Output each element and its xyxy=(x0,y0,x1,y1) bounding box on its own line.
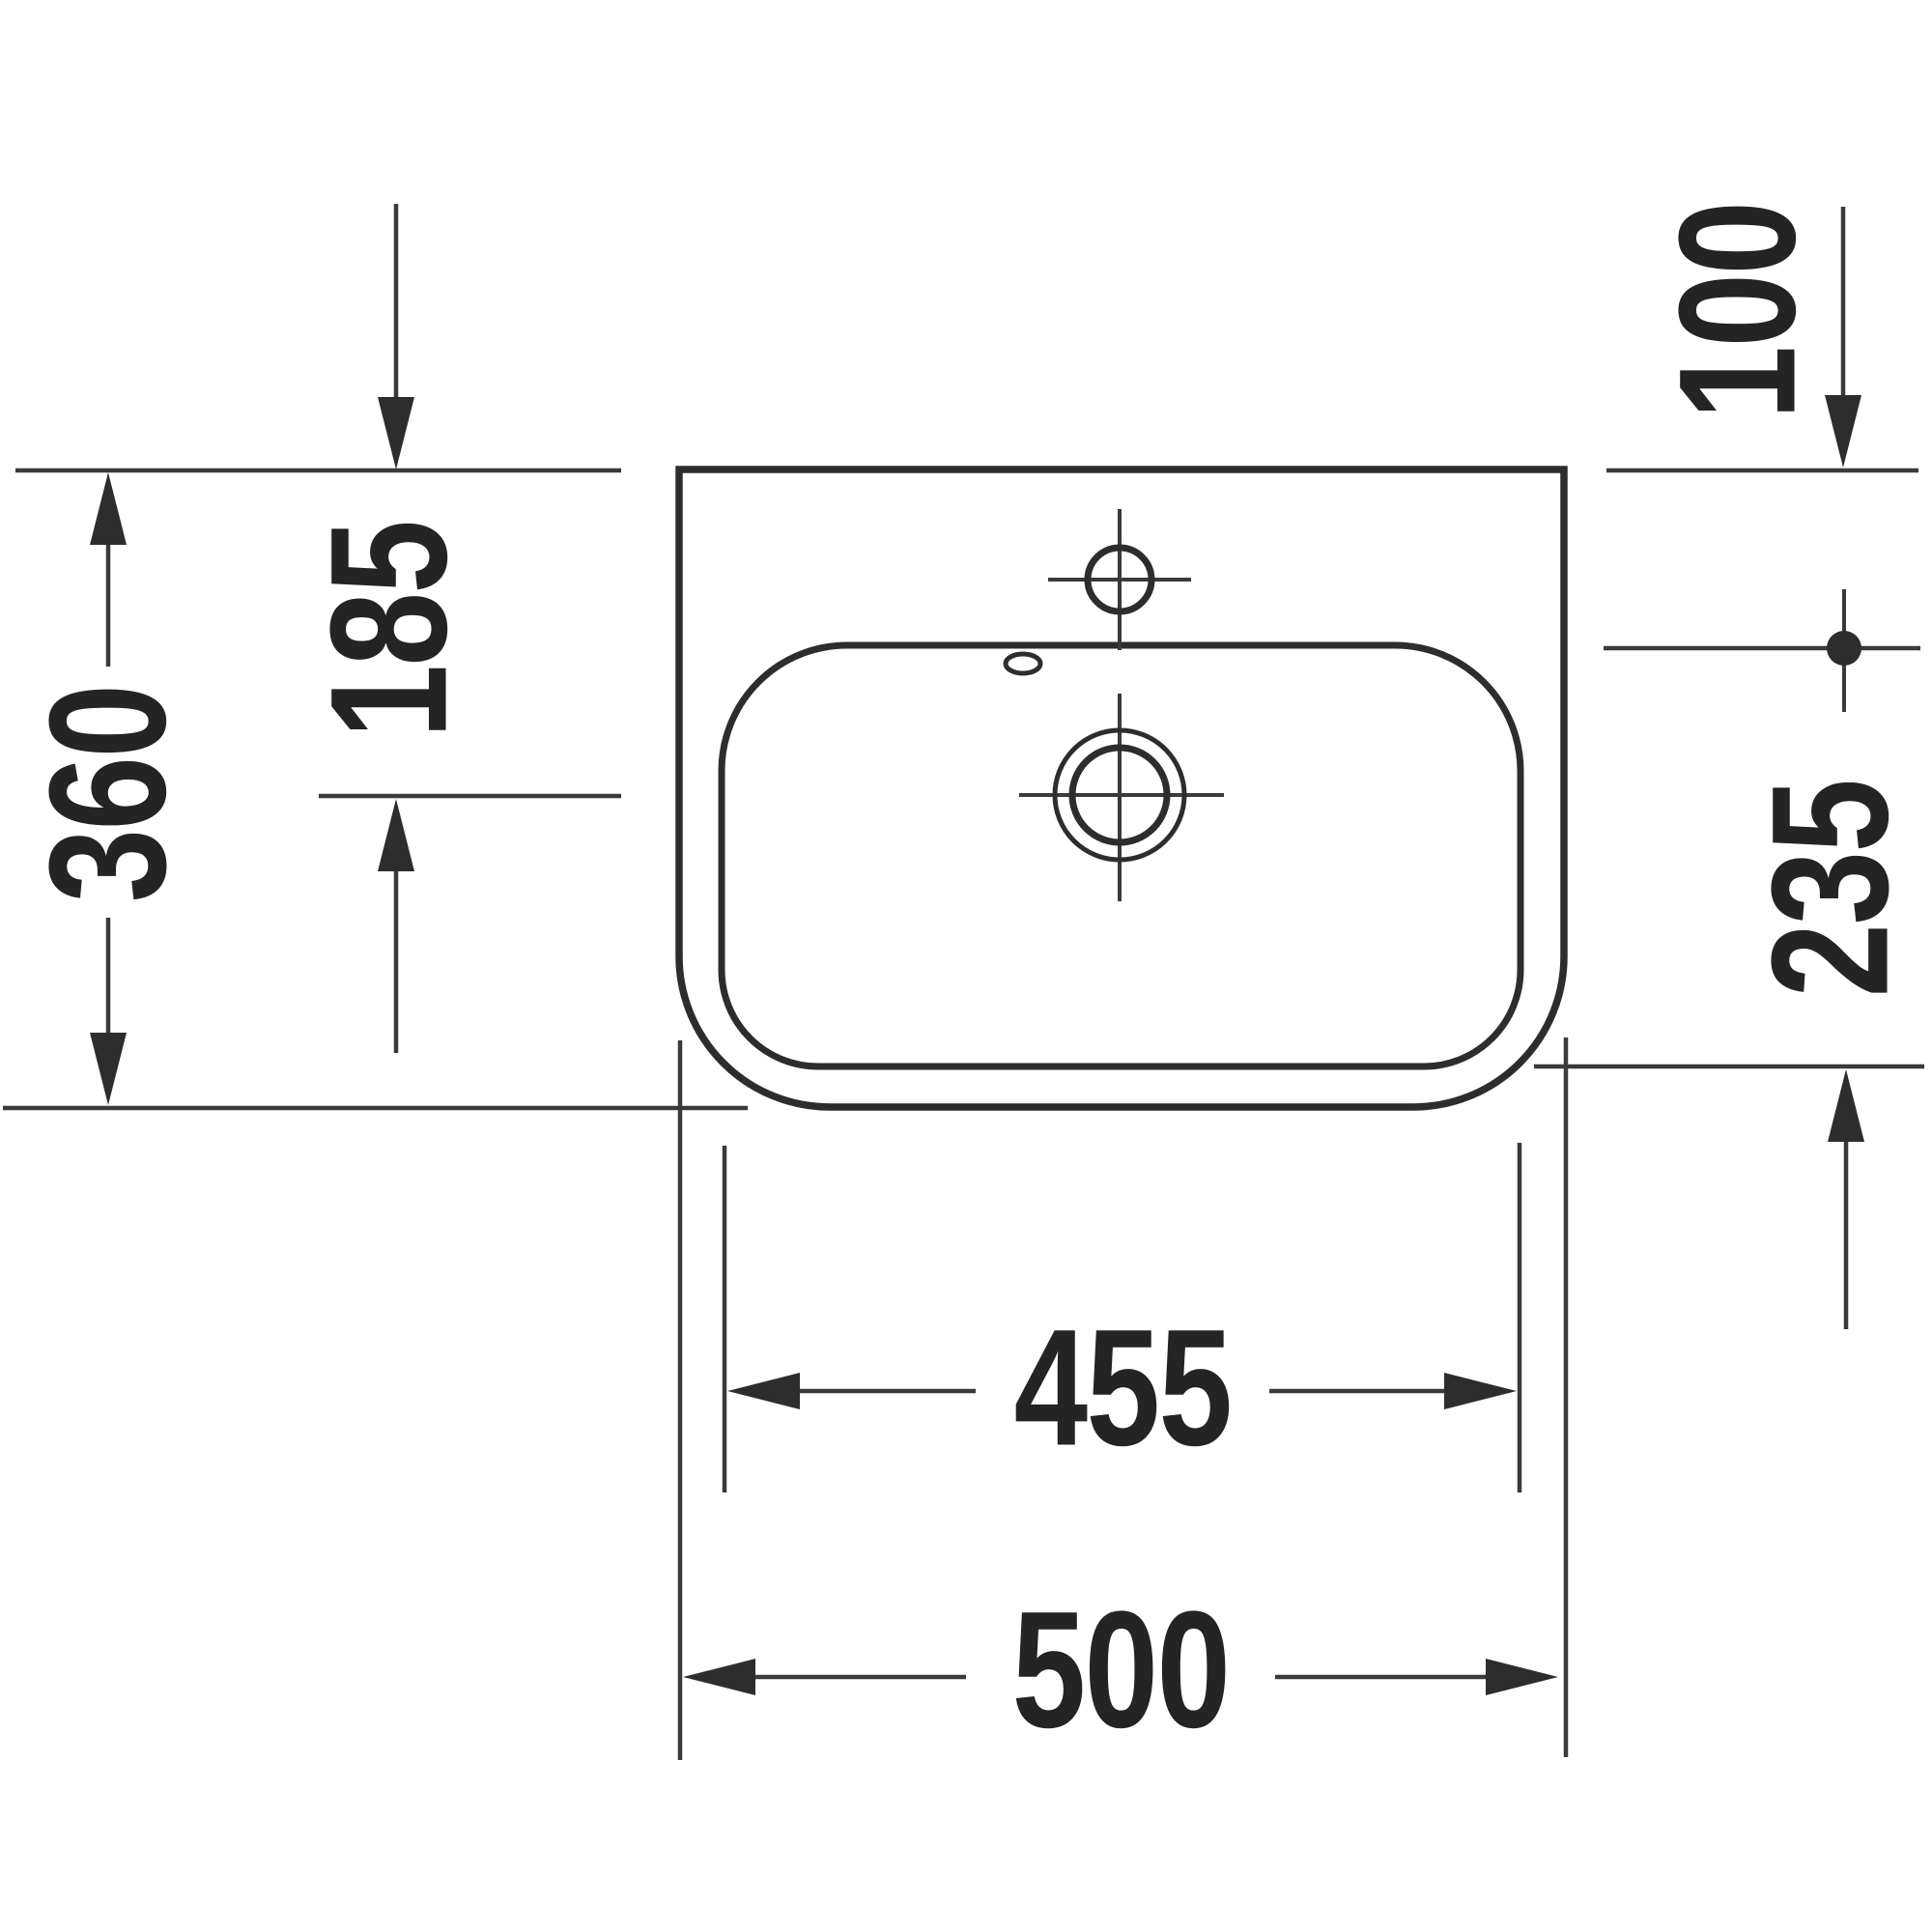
dim-360-arrow-down xyxy=(90,1033,127,1105)
dim-455-arrow-right xyxy=(1444,1373,1517,1409)
dim-455-label: 455 xyxy=(1014,1295,1232,1481)
basin xyxy=(679,469,1861,1107)
fixing-point xyxy=(1827,589,1861,712)
dimension-455: 455 xyxy=(727,1295,1517,1481)
faucet-hole xyxy=(1048,509,1191,650)
washbasin-dimension-drawing: 360 185 100 235 455 xyxy=(0,0,1932,1932)
drain xyxy=(1019,694,1224,901)
overflow-hole xyxy=(1006,654,1040,673)
dim-500-label: 500 xyxy=(1012,1577,1230,1763)
drawing-canvas: 360 185 100 235 455 xyxy=(0,0,1932,1932)
dim-500-arrow-left xyxy=(683,1659,755,1695)
dimension-185: 185 xyxy=(297,204,482,1053)
dim-235-label: 235 xyxy=(1738,781,1923,998)
dim-360-arrow-up xyxy=(90,472,127,545)
dim-100-label: 100 xyxy=(1645,203,1831,420)
dim-235-arrow-up xyxy=(1828,1069,1864,1142)
dimension-360: 360 xyxy=(15,472,201,1105)
dimension-235: 235 xyxy=(1738,781,1923,1329)
dim-500-arrow-right xyxy=(1486,1659,1558,1695)
dim-185-arrow-up xyxy=(378,799,414,871)
dim-455-arrow-left xyxy=(727,1373,800,1409)
dimension-100: 100 xyxy=(1645,203,1861,468)
dim-185-label: 185 xyxy=(297,522,482,739)
reference-lines xyxy=(3,470,1924,1760)
dim-185-arrow-down xyxy=(378,397,414,469)
fixing-point-dot xyxy=(1827,631,1861,666)
dim-360-label: 360 xyxy=(15,686,201,903)
dimension-500: 500 xyxy=(683,1577,1558,1763)
